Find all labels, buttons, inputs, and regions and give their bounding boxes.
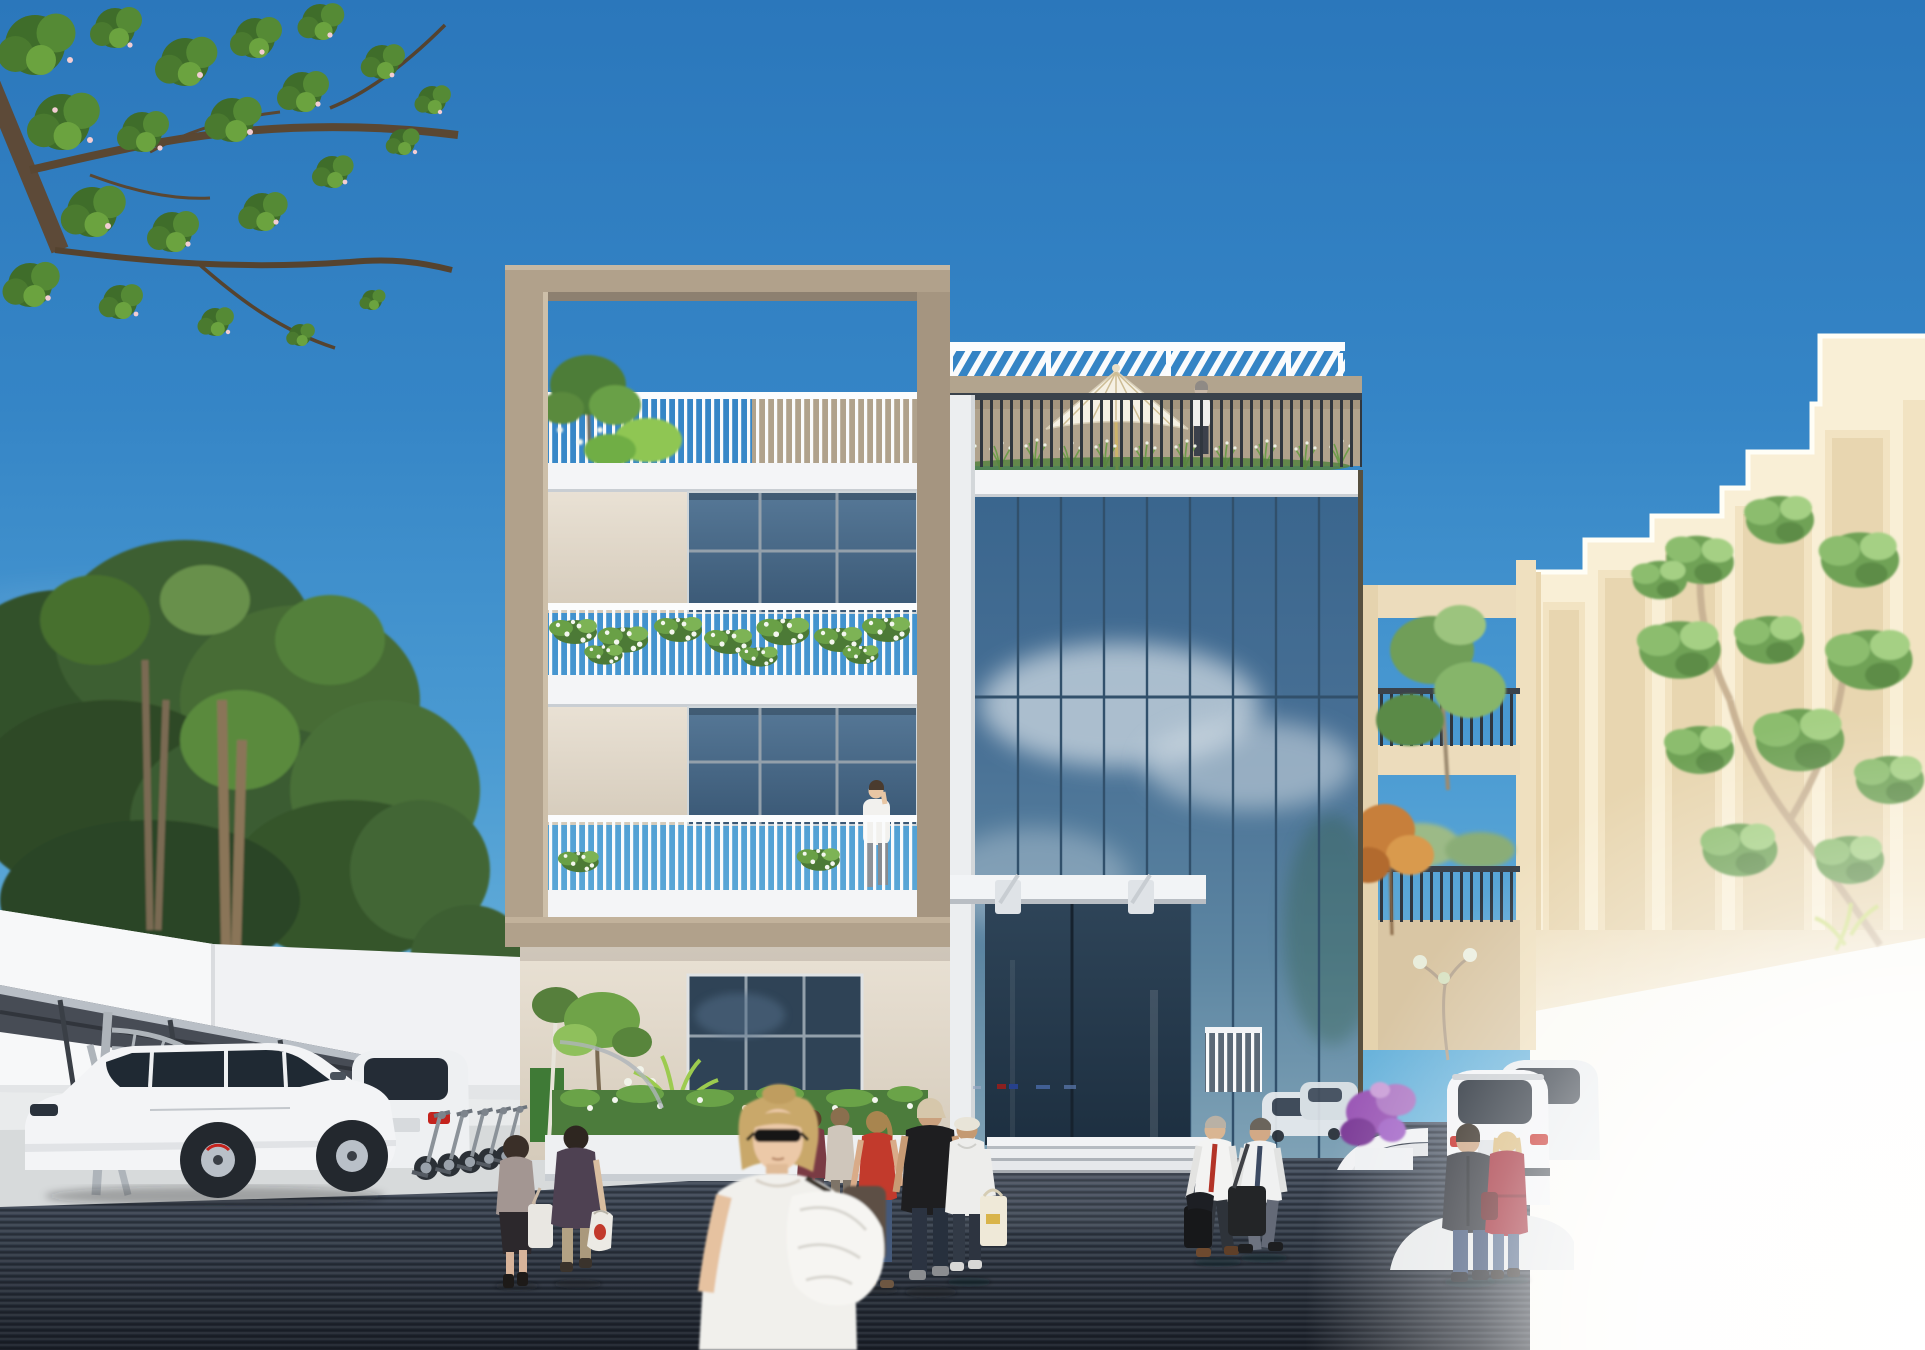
render-canvas: [0, 0, 1925, 1350]
tower-slab: [935, 470, 1362, 497]
architectural-render: [0, 0, 1925, 1350]
pergola-louvers: [935, 350, 1345, 378]
window-l4: [688, 492, 917, 613]
balcony-l2-railing: [548, 815, 917, 890]
balcony-l4: [548, 603, 917, 675]
overexposure-fade: [1100, 700, 1925, 1350]
slab-2: [548, 890, 917, 917]
roof-railing: [950, 399, 1362, 467]
slab-3: [548, 675, 917, 707]
pergola-beam: [935, 342, 1345, 351]
slab-4: [548, 463, 917, 492]
